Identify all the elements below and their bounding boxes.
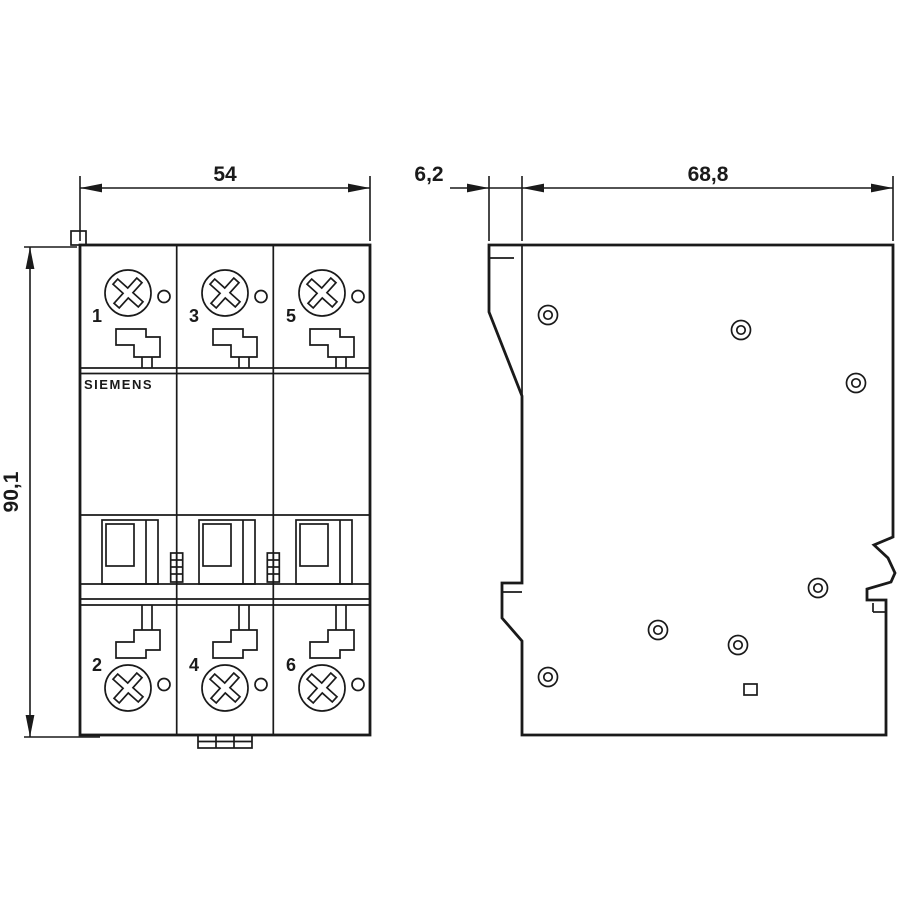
din-release-clip — [198, 735, 252, 748]
screw-head-icon — [202, 665, 248, 711]
top-mounting-tab — [71, 231, 86, 245]
screw-head-icon — [299, 270, 345, 316]
front-view: SIEMENS 1 2 — [71, 231, 370, 748]
arrowhead-right-icon — [467, 184, 489, 193]
front-view-outline — [80, 245, 370, 735]
screw-head-icon — [105, 270, 151, 316]
front-height-dim-label: 90,1 — [0, 471, 23, 512]
terminal-number: 5 — [286, 306, 296, 326]
side-depth-dim-label: 68,8 — [688, 163, 729, 186]
arrowhead-right-icon — [348, 184, 370, 193]
drawing-canvas: 54 90,1 6,2 68,8 SIEMENS — [0, 0, 900, 900]
terminal-number: 1 — [92, 306, 102, 326]
arrowhead-left-icon — [80, 184, 102, 193]
screw-head-icon — [202, 270, 248, 316]
screw-head-icon — [299, 665, 345, 711]
terminal-number: 3 — [189, 306, 199, 326]
screw-head-icon — [105, 665, 151, 711]
dimension-drawing: 54 90,1 6,2 68,8 SIEMENS — [0, 0, 900, 900]
arrowhead-up-icon — [26, 247, 35, 269]
arrowhead-down-icon — [26, 715, 35, 737]
terminal-number: 6 — [286, 655, 296, 675]
side-view — [489, 245, 895, 735]
front-width-dim-label: 54 — [213, 163, 237, 186]
side-offset-dim-label: 6,2 — [414, 163, 443, 186]
brand-logo: SIEMENS — [84, 377, 153, 392]
front-width-dimension: 54 — [80, 163, 370, 241]
side-offset-dimension: 6,2 — [414, 163, 522, 241]
side-depth-dimension: 68,8 — [522, 163, 893, 241]
arrowhead-right-icon — [871, 184, 893, 193]
terminal-number: 4 — [189, 655, 199, 675]
arrowhead-left-icon — [522, 184, 544, 193]
terminal-number: 2 — [92, 655, 102, 675]
